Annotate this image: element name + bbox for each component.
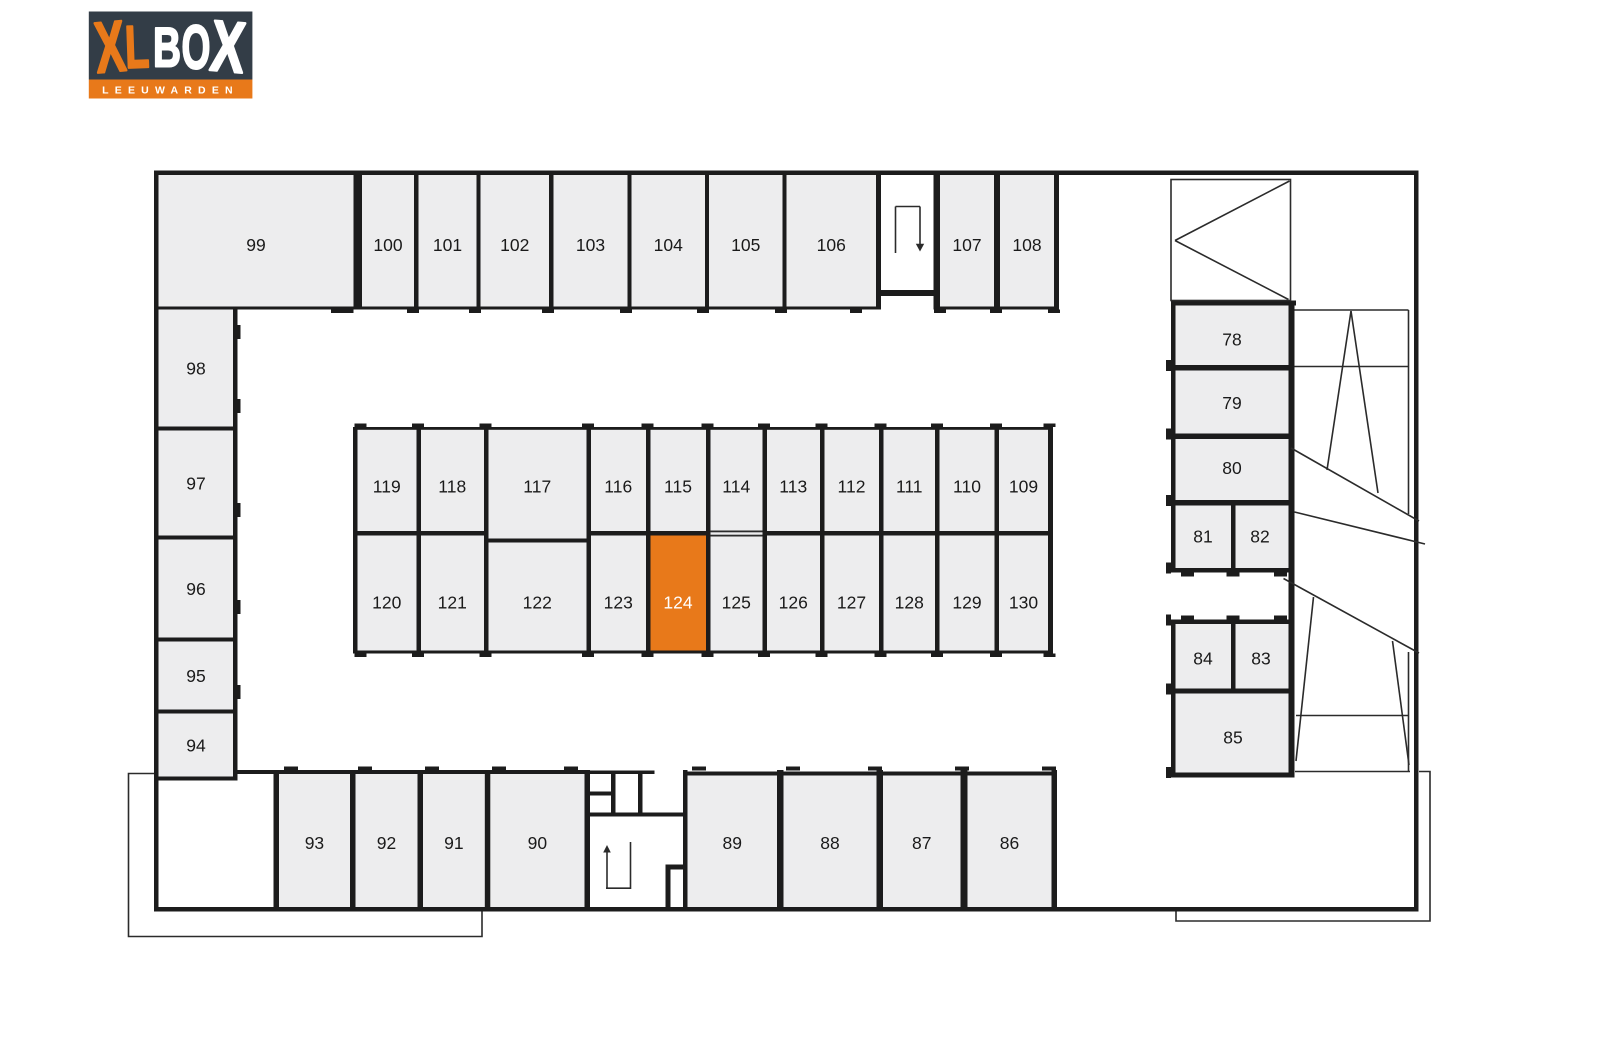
svg-text:103: 103	[576, 235, 605, 255]
svg-text:78: 78	[1222, 330, 1241, 350]
svg-text:97: 97	[186, 474, 205, 494]
svg-text:116: 116	[604, 477, 632, 497]
svg-text:X: X	[207, 6, 248, 89]
svg-text:129: 129	[952, 593, 981, 613]
svg-text:L: L	[124, 13, 150, 81]
svg-text:105: 105	[731, 235, 760, 255]
svg-text:102: 102	[500, 235, 529, 255]
svg-text:119: 119	[373, 477, 401, 497]
svg-text:112: 112	[838, 477, 866, 497]
svg-text:B: B	[153, 15, 181, 78]
svg-text:92: 92	[377, 833, 396, 853]
svg-text:113: 113	[779, 477, 807, 497]
svg-text:125: 125	[722, 593, 751, 613]
svg-text:106: 106	[817, 235, 846, 255]
svg-text:84: 84	[1193, 649, 1213, 669]
svg-text:87: 87	[912, 833, 931, 853]
svg-text:80: 80	[1222, 458, 1242, 478]
svg-text:127: 127	[837, 593, 866, 613]
svg-text:115: 115	[664, 477, 692, 497]
svg-text:118: 118	[438, 477, 466, 497]
svg-text:110: 110	[953, 477, 981, 497]
svg-text:117: 117	[523, 477, 551, 497]
svg-text:96: 96	[186, 579, 205, 599]
svg-text:120: 120	[372, 593, 401, 613]
svg-text:98: 98	[186, 359, 205, 379]
svg-text:82: 82	[1250, 527, 1269, 547]
svg-text:93: 93	[305, 833, 324, 853]
svg-text:108: 108	[1012, 235, 1041, 255]
svg-text:121: 121	[438, 593, 467, 613]
svg-text:111: 111	[896, 477, 923, 497]
svg-text:128: 128	[895, 593, 924, 613]
svg-text:91: 91	[444, 833, 463, 853]
svg-text:99: 99	[246, 235, 265, 255]
svg-text:114: 114	[722, 477, 750, 497]
svg-text:122: 122	[523, 593, 552, 613]
svg-text:O: O	[182, 14, 211, 83]
svg-text:109: 109	[1009, 477, 1038, 497]
svg-text:79: 79	[1222, 393, 1241, 413]
svg-text:83: 83	[1251, 649, 1270, 669]
svg-text:90: 90	[528, 833, 548, 853]
svg-text:89: 89	[723, 833, 742, 853]
svg-text:94: 94	[186, 736, 206, 756]
svg-text:86: 86	[1000, 833, 1019, 853]
svg-text:126: 126	[779, 593, 808, 613]
svg-text:85: 85	[1223, 728, 1242, 748]
svg-text:95: 95	[186, 666, 205, 686]
svg-text:130: 130	[1009, 593, 1038, 613]
svg-text:100: 100	[373, 235, 402, 255]
svg-text:101: 101	[433, 235, 462, 255]
svg-text:104: 104	[654, 235, 683, 255]
svg-text:88: 88	[820, 833, 839, 853]
svg-text:81: 81	[1193, 527, 1212, 547]
svg-text:124: 124	[663, 593, 692, 613]
svg-text:107: 107	[952, 235, 981, 255]
svg-text:LEEUWARDEN: LEEUWARDEN	[102, 85, 239, 97]
svg-text:123: 123	[604, 593, 633, 613]
